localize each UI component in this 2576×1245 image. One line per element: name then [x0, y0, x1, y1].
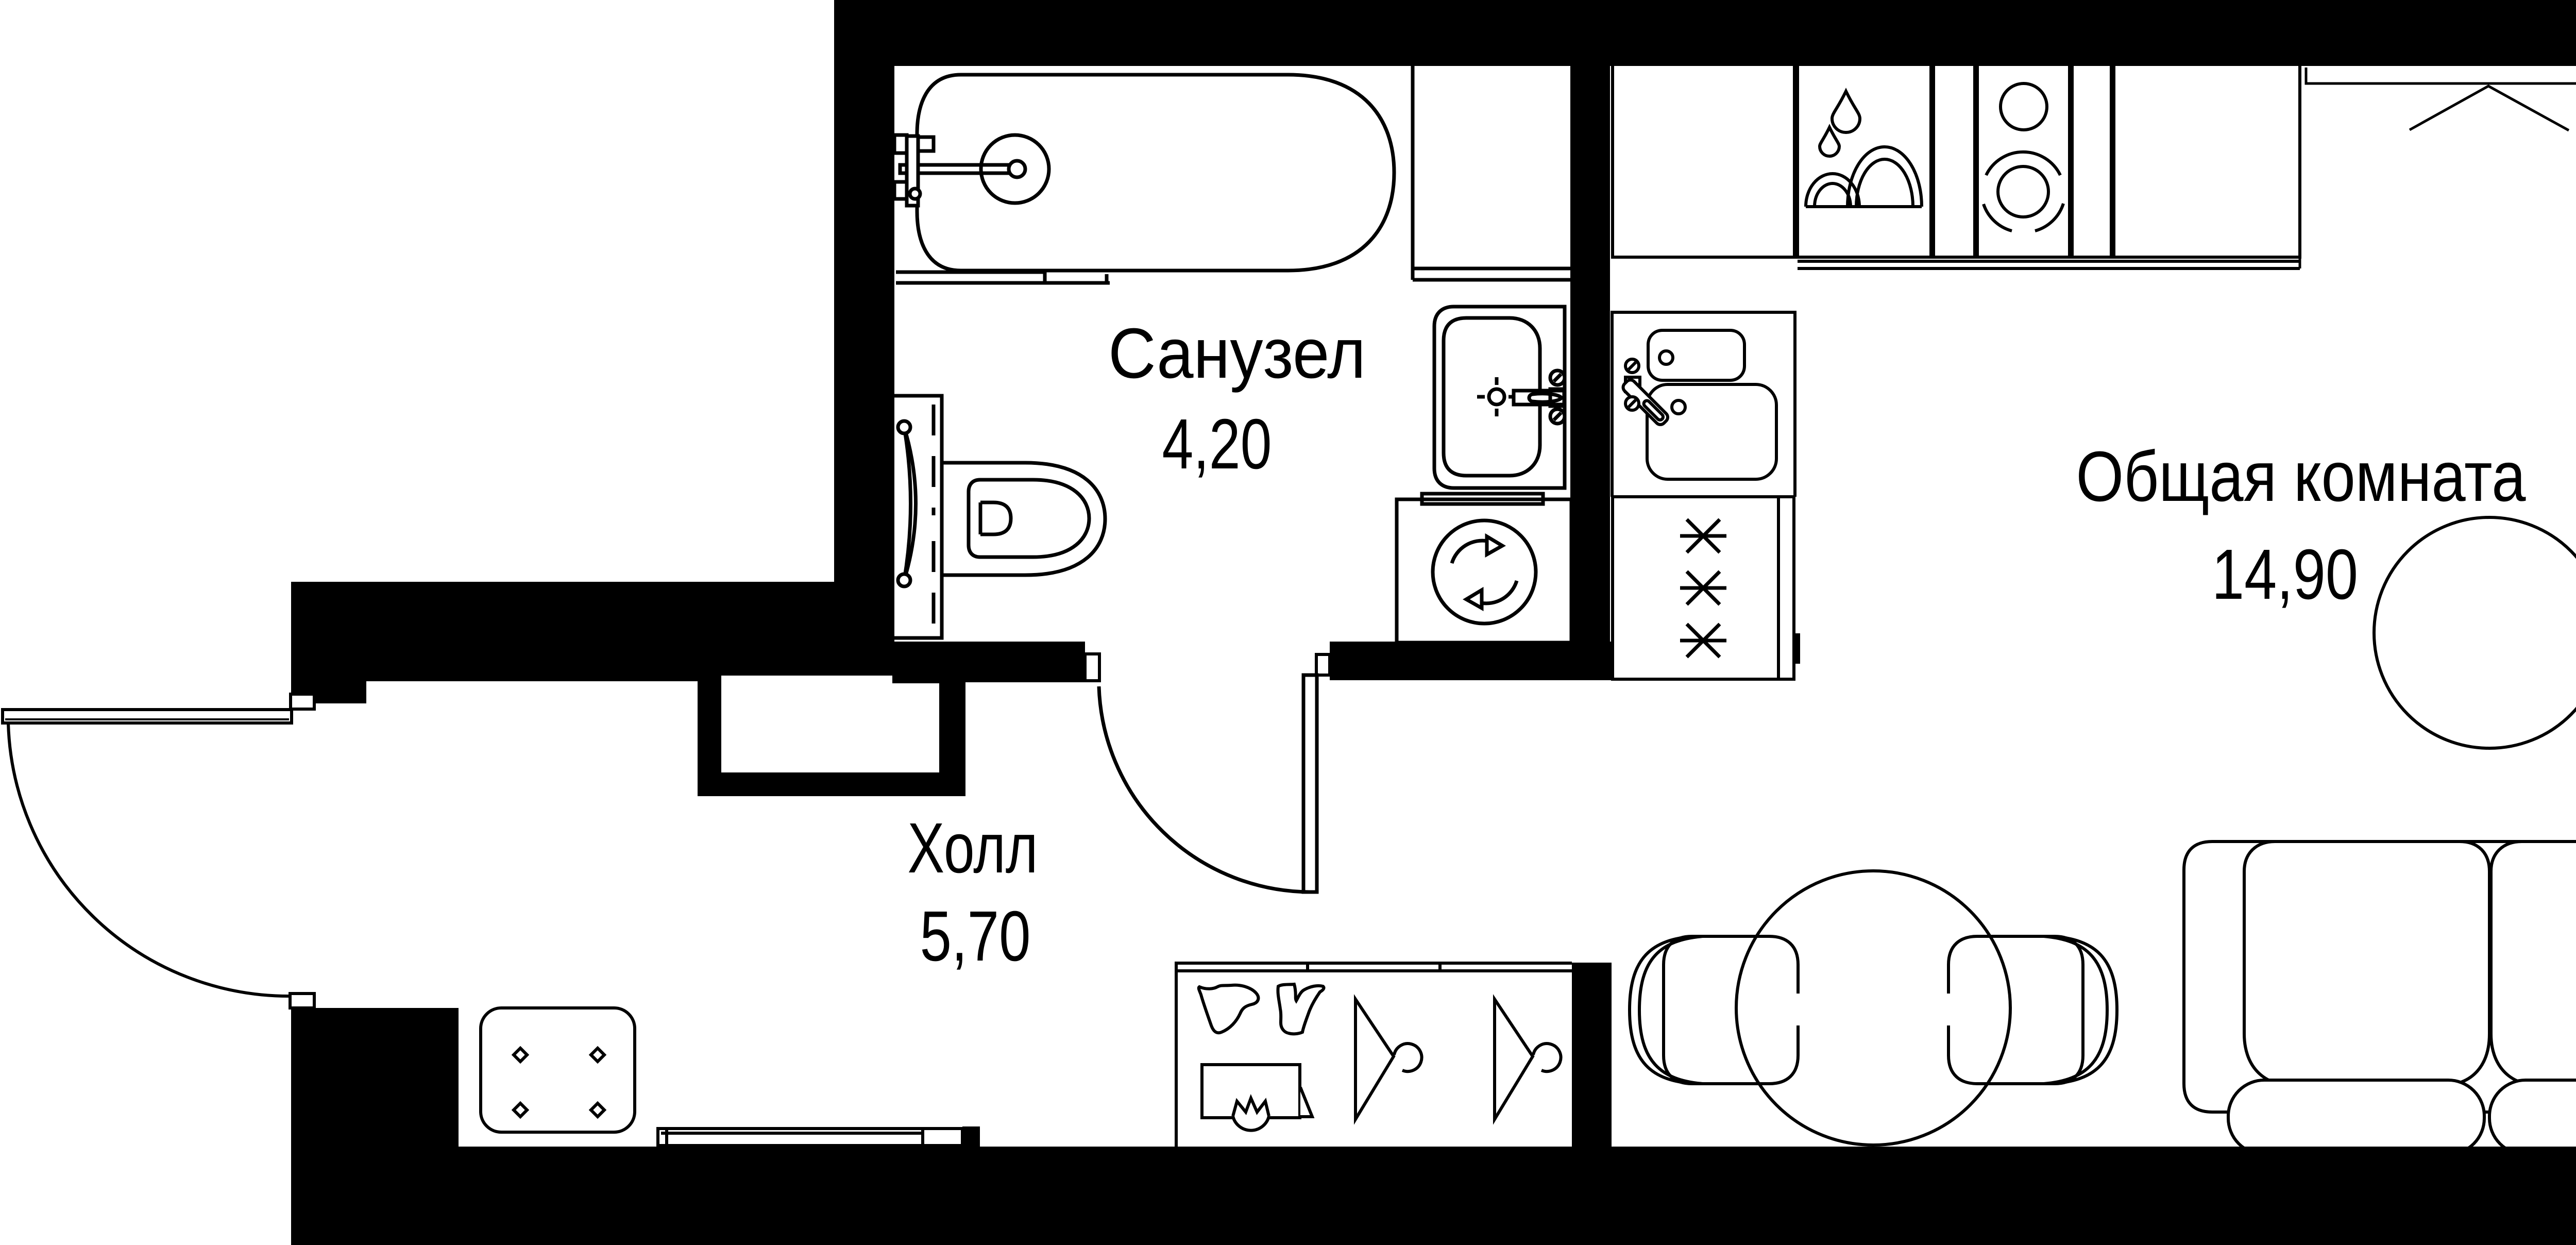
svg-text:Общая комната: Общая комната [2076, 437, 2526, 516]
svg-text:Санузел: Санузел [1108, 314, 1366, 393]
svg-text:Холл: Холл [908, 809, 1038, 888]
svg-text:5,70: 5,70 [920, 897, 1031, 976]
svg-text:14,90: 14,90 [2212, 535, 2358, 614]
svg-text:4,20: 4,20 [1162, 405, 1272, 484]
